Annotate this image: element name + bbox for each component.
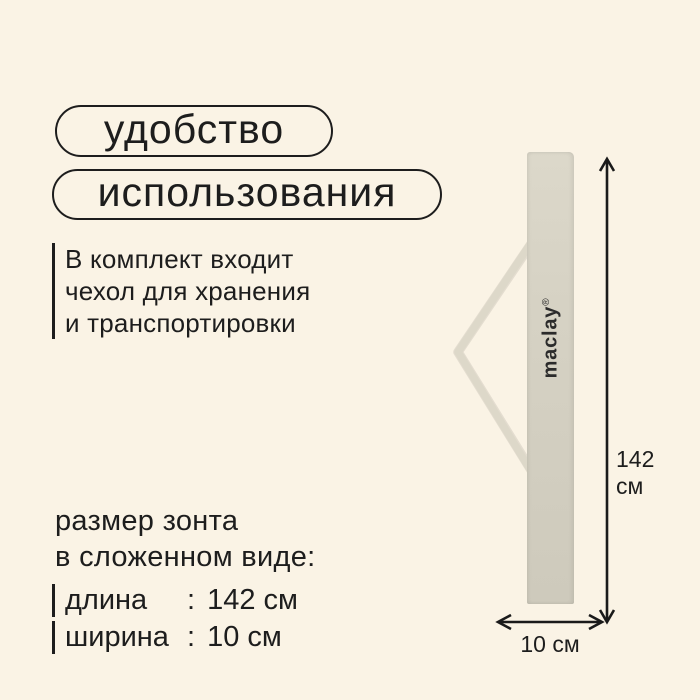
spec-row-width: ширина:10 см	[52, 621, 298, 654]
width-dimension-label: 10 см	[494, 631, 606, 658]
kit-description-line: и транспортировки	[65, 307, 310, 339]
spec-value-width: 10 см	[207, 621, 282, 653]
spec-row-length: длина:142 см	[52, 584, 298, 617]
usage-badge: использования	[52, 169, 442, 220]
height-unit: см	[616, 473, 654, 500]
folded-size-heading: размер зонта в сложенном виде:	[55, 503, 316, 575]
height-dimension-label: 142 см	[616, 446, 654, 500]
folded-size-heading-line: в сложенном виде:	[55, 539, 316, 575]
brand-logo: maclay®	[539, 298, 562, 379]
spec-value-length: 142 см	[207, 584, 298, 616]
spec-colon: :	[187, 584, 195, 617]
umbrella-case-image: maclay®	[527, 152, 574, 604]
kit-description: В комплект входит чехол для хранения и т…	[52, 243, 310, 339]
spec-colon: :	[187, 621, 195, 654]
kit-description-line: В комплект входит	[65, 243, 310, 275]
spec-label-width: ширина	[65, 621, 187, 654]
strap-shadow	[458, 244, 531, 470]
height-value: 142	[616, 446, 654, 473]
registered-mark-icon: ®	[540, 298, 551, 306]
kit-description-line: чехол для хранения	[65, 275, 310, 307]
brand-name: maclay	[539, 306, 561, 379]
size-specs: длина:142 см ширина:10 см	[52, 584, 298, 658]
convenience-badge-label: удобство	[104, 109, 284, 150]
usage-badge-label: использования	[98, 172, 397, 213]
shoulder-strap	[458, 243, 531, 471]
width-arrow-icon	[498, 615, 602, 629]
convenience-badge: удобство	[55, 105, 333, 157]
height-arrow-icon	[600, 159, 614, 622]
spec-label-length: длина	[65, 584, 187, 617]
folded-size-heading-line: размер зонта	[55, 503, 316, 539]
